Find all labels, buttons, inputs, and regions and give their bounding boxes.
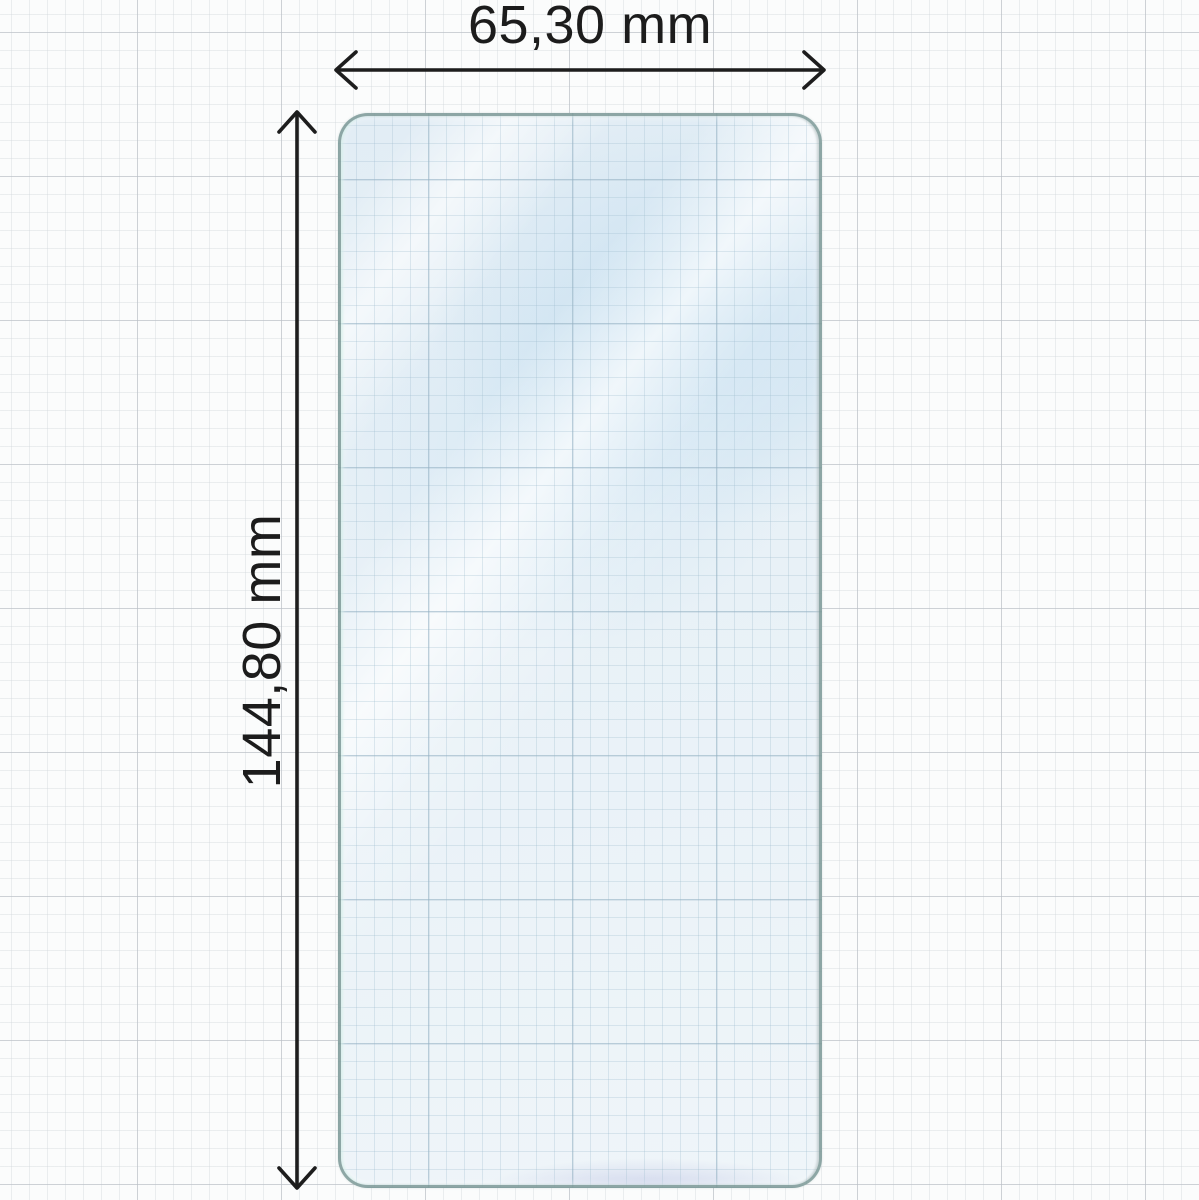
dimension-diagram: 65,30 mm 144,80 mm [0, 0, 1199, 1200]
height-dimension-label: 144,80 mm [235, 514, 289, 789]
width-dimension-label: 65,30 mm [468, 0, 712, 52]
screen-protector-film [338, 113, 822, 1188]
